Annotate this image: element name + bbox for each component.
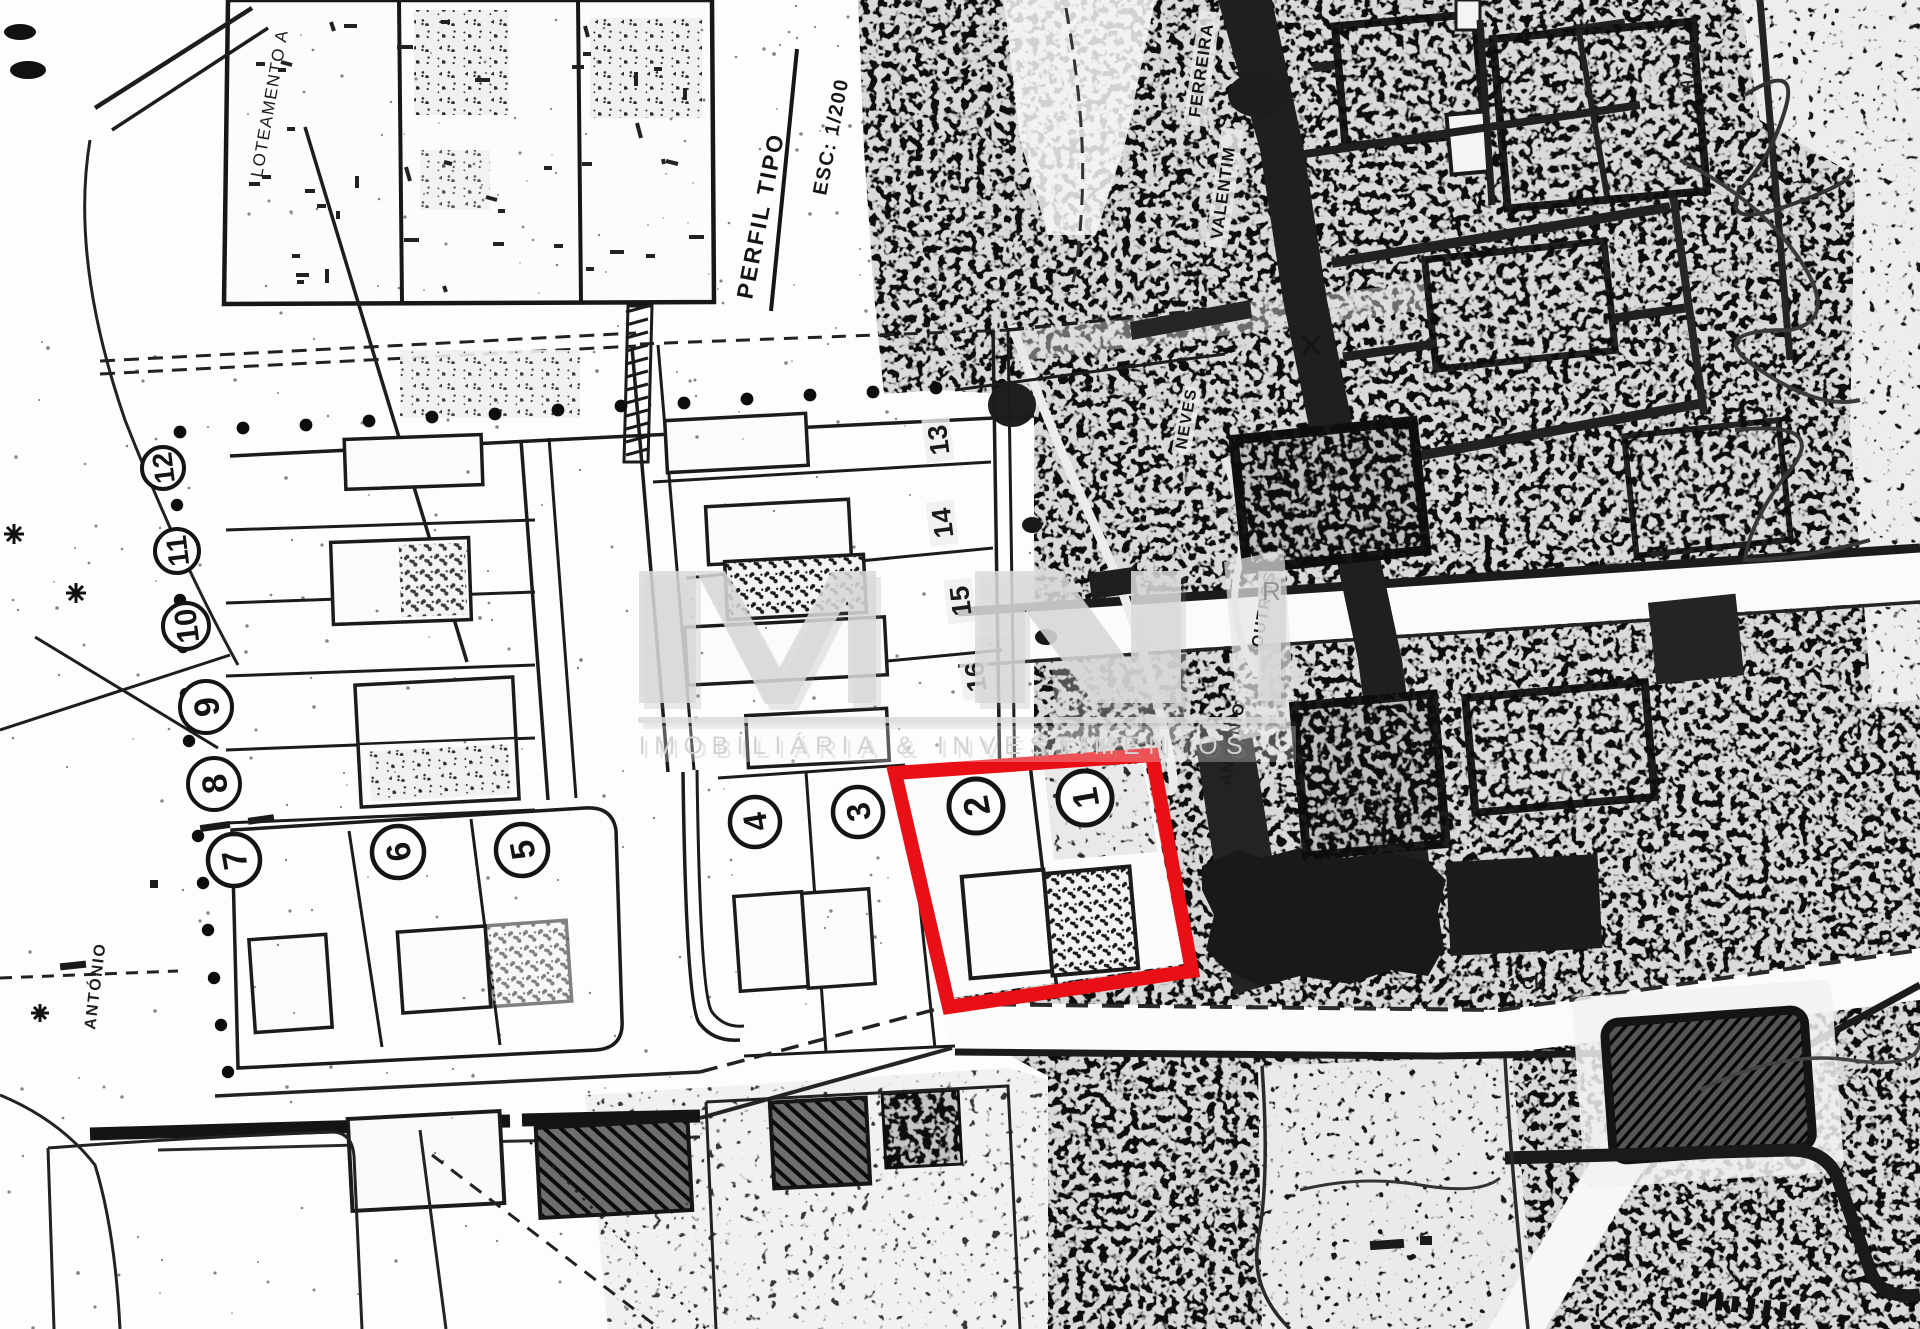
svg-text:1 Ck: 1 Ck <box>1507 973 1544 994</box>
svg-text:14: 14 <box>926 506 959 539</box>
svg-text:12: 12 <box>146 451 181 486</box>
svg-text:10: 10 <box>167 607 206 645</box>
svg-text:R: R <box>1262 576 1281 606</box>
svg-text:11: 11 <box>161 534 196 568</box>
svg-text:15: 15 <box>944 584 977 617</box>
svg-text:IMOBILIÁRIA & INVESTIMENTOS: IMOBILIÁRIA & INVESTIMENTOS <box>639 731 1251 760</box>
svg-text:13: 13 <box>922 423 955 456</box>
